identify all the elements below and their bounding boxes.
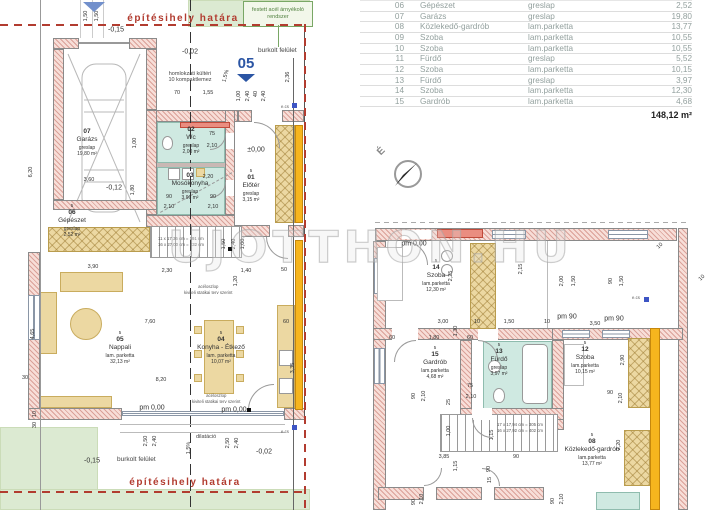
room-area: 3,97 m²	[491, 371, 508, 378]
dim-label: 40	[253, 91, 259, 97]
schedule-cell-floor: greslap	[528, 76, 628, 86]
schedule-cell-name: Fürdő	[404, 76, 528, 86]
schedule-cell-name: Szoba	[404, 86, 528, 96]
dim-label: 2,90	[620, 355, 626, 366]
room-no: 03	[172, 172, 209, 180]
door-arc	[248, 384, 274, 410]
room-name: Gardrób	[421, 359, 449, 367]
room-name: Nappali	[106, 344, 135, 352]
round-table	[70, 308, 102, 340]
window	[562, 330, 590, 338]
floor-plan-sheet: építésihely határa építésihely határa fe…	[0, 0, 720, 510]
dim-label: 3,50	[590, 321, 601, 327]
dim-label: 1,30	[453, 326, 459, 337]
dim-label: 10	[698, 274, 707, 283]
room-area: 4,68 m²	[421, 374, 449, 381]
dim-label: 2,10	[559, 494, 565, 505]
window	[608, 230, 648, 239]
room-area: 10,07 m²	[197, 359, 245, 366]
room-label-06: 506Gépészetgreslap2,52 m²	[58, 203, 86, 239]
dim-label: -0,15	[108, 27, 124, 34]
dim-label: 10	[656, 242, 665, 251]
wardrobe	[470, 243, 496, 329]
roof-overhang-dashed-line	[375, 222, 687, 223]
wall	[494, 487, 544, 500]
dim-label: -0,02	[256, 449, 272, 456]
dim-label: 3,35	[290, 363, 296, 374]
dim-label: 1,20	[233, 276, 239, 287]
schedule-cell-area: 5,52	[628, 54, 692, 64]
dim-label: 2,10	[419, 494, 425, 505]
stair-note-right: 17 x 17,94 cm = 305 cm 16 x 27,92 cm = 4…	[497, 422, 543, 434]
dim-label: 10	[474, 319, 480, 325]
schedule-cell-no: 11	[360, 54, 404, 64]
room-name: Szoba	[422, 272, 450, 280]
dim-label: 25	[446, 399, 452, 405]
schedule-row: 06Gépészetgreslap2,52	[360, 0, 692, 12]
dim-label: 8,20	[156, 377, 167, 383]
dim-label: 75	[209, 131, 215, 137]
gutter-label: e.cs	[281, 429, 289, 435]
dim-label: 1,5%	[221, 69, 230, 83]
dim-label: 2,40	[231, 239, 237, 250]
room-no: 07	[77, 128, 98, 136]
dim-label: 7,60	[145, 319, 156, 325]
dim-label: 1,00	[240, 239, 246, 250]
wardrobe	[628, 338, 650, 408]
schedule-cell-no: 15	[360, 97, 404, 107]
room-label-04: 504Konyha - Étkezőlam. parketta10,07 m²	[197, 330, 245, 366]
room-label-07: 07Garázsgreslap19,80 m²	[77, 128, 98, 158]
room-area: 2,00 m²	[183, 149, 200, 156]
wardrobe	[624, 430, 650, 486]
wall	[678, 228, 688, 510]
dim-label: pm 90	[557, 314, 576, 321]
section-marker-number: 05	[238, 55, 255, 72]
dim-label: 3,85	[439, 454, 450, 460]
room-no: 05	[106, 336, 135, 344]
dim-label: 1,5%	[186, 442, 192, 455]
room-area: 3,15 m²	[243, 197, 260, 204]
dim-label: -0,12	[106, 185, 122, 192]
balcony-edge-line	[547, 241, 548, 328]
sideboard	[40, 396, 112, 408]
dim-label: 2,50	[225, 438, 231, 449]
dim-label: 2,50	[143, 436, 149, 447]
wall	[53, 38, 79, 49]
north-label: É	[375, 145, 387, 157]
steel-column-note-line2: kiviteli statikai terv szerint	[184, 290, 232, 296]
schedule-cell-no: 13	[360, 76, 404, 86]
dim-label: 2,40	[152, 436, 158, 447]
room-area: 12,30 m²	[422, 287, 450, 294]
dim-label: pm 0,00	[139, 405, 164, 412]
schedule-cell-no: 06	[360, 1, 404, 11]
dim-label: 90	[486, 466, 492, 472]
schedule-cell-no: 14	[360, 86, 404, 96]
window	[374, 348, 385, 384]
room-name: Gépészet	[58, 217, 86, 225]
dim-label: 90	[607, 390, 613, 396]
schedule-cell-name: Szoba	[404, 33, 528, 43]
dim-label: pm 0,00	[401, 241, 426, 248]
site-boundary-line-top	[0, 24, 302, 26]
schedule-cell-floor: lam.parketta	[528, 65, 628, 75]
dim-label: 1,00	[236, 91, 242, 102]
dim-label: pm 0,00	[221, 407, 246, 414]
schedule-cell-no: 12	[360, 65, 404, 75]
schedule-row: 08Közlekedő-gardróblam.parketta13,77	[360, 22, 692, 33]
schedule-row: 14Szobalam.parketta12,30	[360, 86, 692, 97]
room-no: 12	[571, 346, 599, 354]
dim-label: 2,36	[285, 72, 291, 83]
room-no: 08	[565, 438, 620, 446]
terrace-step-line	[120, 432, 285, 433]
site-boundary-line-right	[304, 24, 306, 510]
room-label-03: 03Mosókonyhagreslap3,96 m²	[172, 172, 209, 202]
wall	[378, 487, 424, 500]
dim-label: 3,60	[84, 177, 95, 183]
north-arrow-icon	[388, 154, 428, 194]
gutter-marker-icon	[292, 425, 297, 430]
radiator	[437, 229, 483, 238]
room-no: 14	[422, 264, 450, 272]
room-no: 01	[243, 174, 260, 182]
gutter-label: e.cs	[632, 295, 640, 301]
schedule-cell-name: Szoba	[404, 44, 528, 54]
dim-label: 75	[467, 383, 473, 389]
schedule-cell-area: 10,55	[628, 33, 692, 43]
toilet-fixture	[162, 136, 173, 150]
dim-label: 2,10	[208, 204, 219, 210]
dim-label: 2,10	[466, 394, 477, 400]
schedule-cell-name: Közlekedő-gardrób	[404, 22, 528, 32]
door-arc	[424, 468, 442, 486]
dim-label: 2,10	[421, 391, 427, 402]
wall	[238, 110, 252, 122]
wall	[288, 225, 304, 237]
steel-column-note-1: acéloszlop kiviteli statikai terv szerin…	[184, 284, 232, 296]
wardrobe-front-strip	[650, 328, 660, 510]
dim-label: 60	[389, 335, 395, 341]
schedule-cell-name: Gépészet	[404, 1, 528, 11]
schedule-cell-area: 13,77	[628, 22, 692, 32]
room-name: Szoba	[571, 354, 599, 362]
bed	[377, 247, 403, 301]
room-no: 13	[491, 348, 508, 356]
dim-label: 1,50	[619, 276, 625, 287]
paved-surface-label-top: burkolt felület	[258, 47, 297, 54]
site-boundary-line-bottom	[0, 491, 306, 493]
dim-label: 1,80	[429, 335, 440, 341]
section-marker-triangle-icon	[83, 2, 105, 12]
schedule-row: 09Szobalam.parketta10,55	[360, 33, 692, 44]
window	[602, 330, 630, 338]
dim-label: 4,65	[30, 329, 36, 340]
stair-note-left-line2: 16 x 27,00 cm = 432 cm	[158, 242, 204, 248]
room-area: 32,13 m²	[106, 359, 135, 366]
schedule-row: 13Fürdőgreslap3,97	[360, 75, 692, 86]
dim-label: 2,00	[559, 276, 565, 287]
schedule-cell-name: Gardrób	[404, 97, 528, 107]
schedule-cell-no: 10	[360, 44, 404, 54]
door-opening	[226, 180, 234, 196]
schedule-cell-floor: lam.parketta	[528, 86, 628, 96]
dim-label: 3,90	[88, 264, 99, 270]
schedule-cell-area: 19,80	[628, 12, 692, 22]
cooktop	[279, 378, 293, 394]
sofa	[60, 272, 123, 292]
dim-label: 70	[174, 90, 180, 96]
room-label-08: 508Közlekedő-gardróblam.parketta13,77 m²	[565, 432, 620, 468]
room-area: 13,77 m²	[565, 461, 620, 468]
dim-label: 1,55	[203, 90, 214, 96]
room-name: Közlekedő-gardrób	[565, 446, 620, 454]
stair-note-left: 11 x 17,36 cm = 191 cm 16 x 27,00 cm = 4…	[158, 236, 204, 248]
schedule-row: 15Gardróblam.parketta4,68	[360, 97, 692, 108]
room-name: Fürdő	[491, 356, 508, 364]
dim-label: 2,10	[164, 204, 175, 210]
site-boundary-label-top: építésihely határa	[127, 13, 238, 24]
schedule-row: 07Garázsgreslap19,80	[360, 12, 692, 23]
wall	[436, 487, 482, 500]
dim-label: 1,15	[453, 461, 459, 472]
dim-label: 2,30	[162, 268, 173, 274]
room-label-13: 513Fürdőgreslap3,97 m²	[491, 342, 508, 378]
schedule-cell-name: Szoba	[404, 65, 528, 75]
dim-label: 1,80	[130, 185, 136, 196]
site-boundary-label-bottom: építésihely határa	[129, 477, 240, 488]
door-opening	[478, 328, 498, 340]
schedule-cell-no: 08	[360, 22, 404, 32]
dim-label: 30	[32, 422, 38, 428]
schedule-cell-no: 07	[360, 12, 404, 22]
wardrobe-front-strip	[295, 125, 303, 223]
facade-panel-note-line2: 10 kompaktlemez	[168, 77, 211, 83]
dim-label: 1,40	[241, 268, 252, 274]
wall	[53, 49, 64, 200]
steel-column-note-2: acéloszlop kiviteli statikai terv szerin…	[192, 393, 240, 405]
schedule-cell-floor: lam.parketta	[528, 97, 628, 107]
schedule-cell-area: 12,30	[628, 86, 692, 96]
steel-column-note-line2: kiviteli statikai terv szerint	[192, 399, 240, 405]
room-no: 15	[421, 351, 449, 359]
kitchen-wall-strip	[295, 240, 303, 410]
dim-label: 50	[281, 267, 287, 273]
room-no: 02	[183, 126, 200, 134]
shading-system-note: festett acél árnyékoló rendszer	[252, 7, 304, 20]
dim-label: 1,50	[94, 11, 100, 22]
window	[492, 230, 526, 239]
gutter-marker-icon	[292, 103, 297, 108]
dim-label: 2,40	[261, 91, 267, 102]
door-arc	[266, 237, 288, 259]
room-area: 10,15 m²	[571, 369, 599, 376]
schedule-cell-area: 10,55	[628, 44, 692, 54]
dim-label: 1,00	[446, 426, 452, 437]
schedule-cell-area: 10,15	[628, 65, 692, 75]
dim-label: 30	[22, 375, 28, 381]
dim-label: 90	[550, 498, 556, 504]
dim-label: 10	[544, 319, 550, 325]
dim-label: 1,50	[221, 239, 227, 250]
dim-label: 1,50	[83, 11, 89, 22]
paved-surface-label-bottom: burkolt felület	[117, 456, 156, 463]
schedule-cell-floor: lam.parketta	[528, 22, 628, 32]
room-label-15: 515Gardróblam.parketta4,68 m²	[421, 345, 449, 381]
schedule-row: 11Fürdőgreslap5,52	[360, 54, 692, 65]
schedule-cell-floor: lam.parketta	[528, 33, 628, 43]
dim-label: 1,00	[132, 138, 138, 149]
garage-door	[79, 42, 129, 44]
dim-label: 3,00	[438, 319, 449, 325]
dim-label: pm 90	[604, 316, 623, 323]
schedule-cell-floor: greslap	[528, 1, 628, 11]
driveway-line	[80, 0, 81, 38]
dim-label: 60	[467, 335, 473, 341]
schedule-row: 10Szobalam.parketta10,55	[360, 44, 692, 55]
room-label-02: 02Wcgreslap2,00 m²	[183, 126, 200, 156]
stair-note-right-line2: 16 x 27,92 cm = 402 cm	[497, 428, 543, 434]
schedule-cell-floor: greslap	[528, 12, 628, 22]
room-area: 3,96 m²	[172, 195, 209, 202]
bathroom-floor	[596, 492, 640, 510]
dim-label: 2,40	[245, 91, 251, 102]
partition-wall	[157, 163, 225, 167]
wall	[28, 408, 122, 420]
terrace-glass-door	[122, 411, 284, 416]
schedule-cell-name: Garázs	[404, 12, 528, 22]
dim-label: 90	[411, 393, 417, 399]
schedule-cell-area: 4,68	[628, 97, 692, 107]
door-opening	[226, 133, 234, 149]
plot-line-left	[40, 0, 41, 510]
dilatation-label: dilatáció	[196, 434, 216, 440]
facade-panel-note: homlokzati kültéri 10 kompaktlemez	[168, 71, 211, 83]
note-leader-line	[278, 25, 279, 47]
dim-label: 1,50	[571, 276, 577, 287]
chair	[194, 374, 202, 382]
dim-label: 60	[283, 319, 289, 325]
dim-label: 90	[513, 454, 519, 460]
chair	[236, 374, 244, 382]
room-label-14: 514Szobalam.parketta12,30 m²	[422, 258, 450, 294]
gutter-label: e.cs	[281, 104, 289, 110]
room-name: Wc	[183, 134, 200, 142]
dim-label: 10	[32, 411, 38, 417]
room-area: 2,52 m²	[58, 232, 86, 239]
room-label-05: 505Nappalilam. parketta32,13 m²	[106, 330, 135, 366]
section-marker-triangle-icon	[237, 74, 255, 82]
dim-label: 2,40	[234, 438, 240, 449]
dim-label: -0,02	[182, 49, 198, 56]
reference-line-right	[293, 58, 294, 510]
terrace-step-line	[120, 424, 285, 425]
dim-label: 6,20	[28, 167, 34, 178]
schedule-total: 148,12 m²	[360, 110, 692, 120]
dim-label: 2,15	[518, 264, 524, 275]
room-name: Garázs	[77, 136, 98, 144]
dim-label: -0,15	[84, 458, 100, 465]
steel-column	[247, 408, 251, 412]
schedule-row: 12Szobalam.parketta10,15	[360, 65, 692, 76]
schedule-cell-floor: greslap	[528, 54, 628, 64]
room-label-01: 501Előtérgreslap3,15 m²	[243, 168, 260, 204]
dim-label: 15	[487, 477, 493, 483]
room-no: 06	[58, 209, 86, 217]
room-area: 19,80 m²	[77, 151, 98, 158]
room-name: Mosókonyha	[172, 180, 209, 188]
door-opening	[392, 328, 418, 340]
dim-label: ±0,00	[247, 147, 264, 154]
dim-label: 2,10	[207, 143, 218, 149]
wall	[129, 38, 157, 49]
dim-label: 90	[210, 194, 216, 200]
wall	[146, 49, 157, 110]
dim-label: 90	[411, 499, 417, 505]
gutter-marker-icon	[644, 297, 649, 302]
bathtub	[522, 344, 548, 404]
room-name: Előtér	[243, 182, 260, 190]
room-name: Konyha - Étkező	[197, 344, 245, 352]
sofa	[40, 292, 57, 354]
schedule-cell-name: Fürdő	[404, 54, 528, 64]
dim-label: 90	[608, 278, 614, 284]
room-schedule-table: 06Gépészetgreslap2,5207Garázsgreslap19,8…	[360, 0, 692, 120]
schedule-rows: 06Gépészetgreslap2,5207Garázsgreslap19,8…	[360, 0, 692, 107]
toilet-fixture	[493, 388, 505, 403]
schedule-cell-area: 3,97	[628, 76, 692, 86]
schedule-cell-no: 09	[360, 33, 404, 43]
dim-label: 1,50	[504, 319, 515, 325]
room-label-12: 512Szobalam.parketta10,15 m²	[571, 340, 599, 376]
schedule-cell-floor: lam.parketta	[528, 44, 628, 54]
dim-label: 2,10	[618, 393, 624, 404]
schedule-cell-area: 2,52	[628, 1, 692, 11]
door-arc	[394, 340, 416, 362]
door-opening	[402, 230, 432, 239]
dim-label: 1,15	[489, 430, 495, 441]
